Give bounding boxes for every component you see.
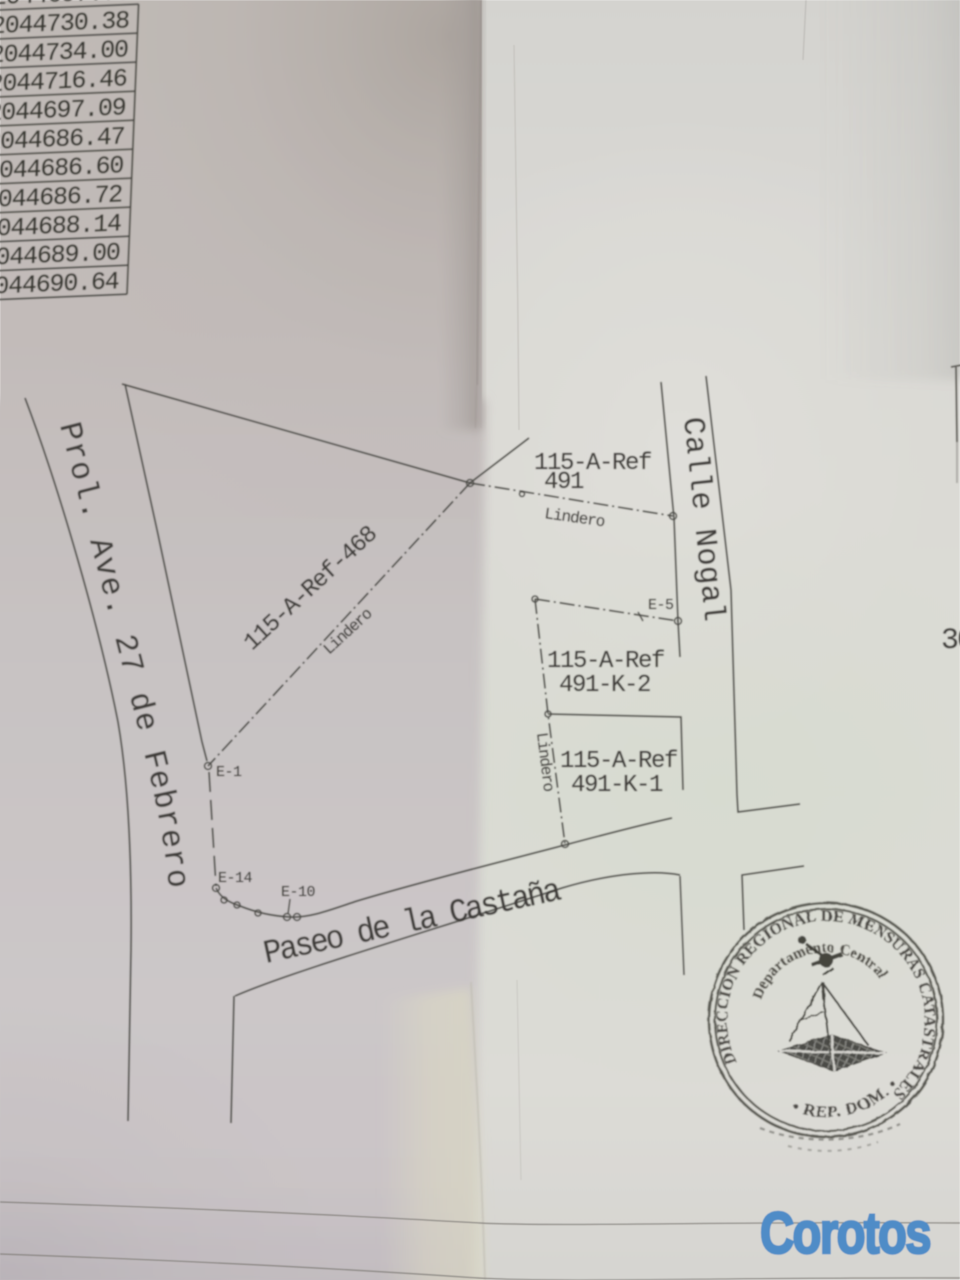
svg-text:E-5: E-5 bbox=[648, 597, 674, 614]
svg-text:Corotos: Corotos bbox=[760, 1201, 930, 1266]
svg-text:115-A-Ref: 115-A-Ref bbox=[560, 748, 677, 775]
svg-text:2044690.64: 2044690.64 bbox=[0, 268, 119, 303]
svg-text:30: 30 bbox=[941, 624, 960, 658]
svg-text:E-10: E-10 bbox=[281, 884, 316, 901]
svg-text:E-1: E-1 bbox=[216, 764, 242, 781]
svg-text:491: 491 bbox=[544, 469, 584, 496]
svg-text:491-K-2: 491-K-2 bbox=[559, 672, 650, 699]
svg-text:115-A-Ref: 115-A-Ref bbox=[547, 648, 664, 675]
svg-text:491-K-1: 491-K-1 bbox=[571, 772, 663, 799]
svg-text:E-14: E-14 bbox=[218, 870, 253, 887]
